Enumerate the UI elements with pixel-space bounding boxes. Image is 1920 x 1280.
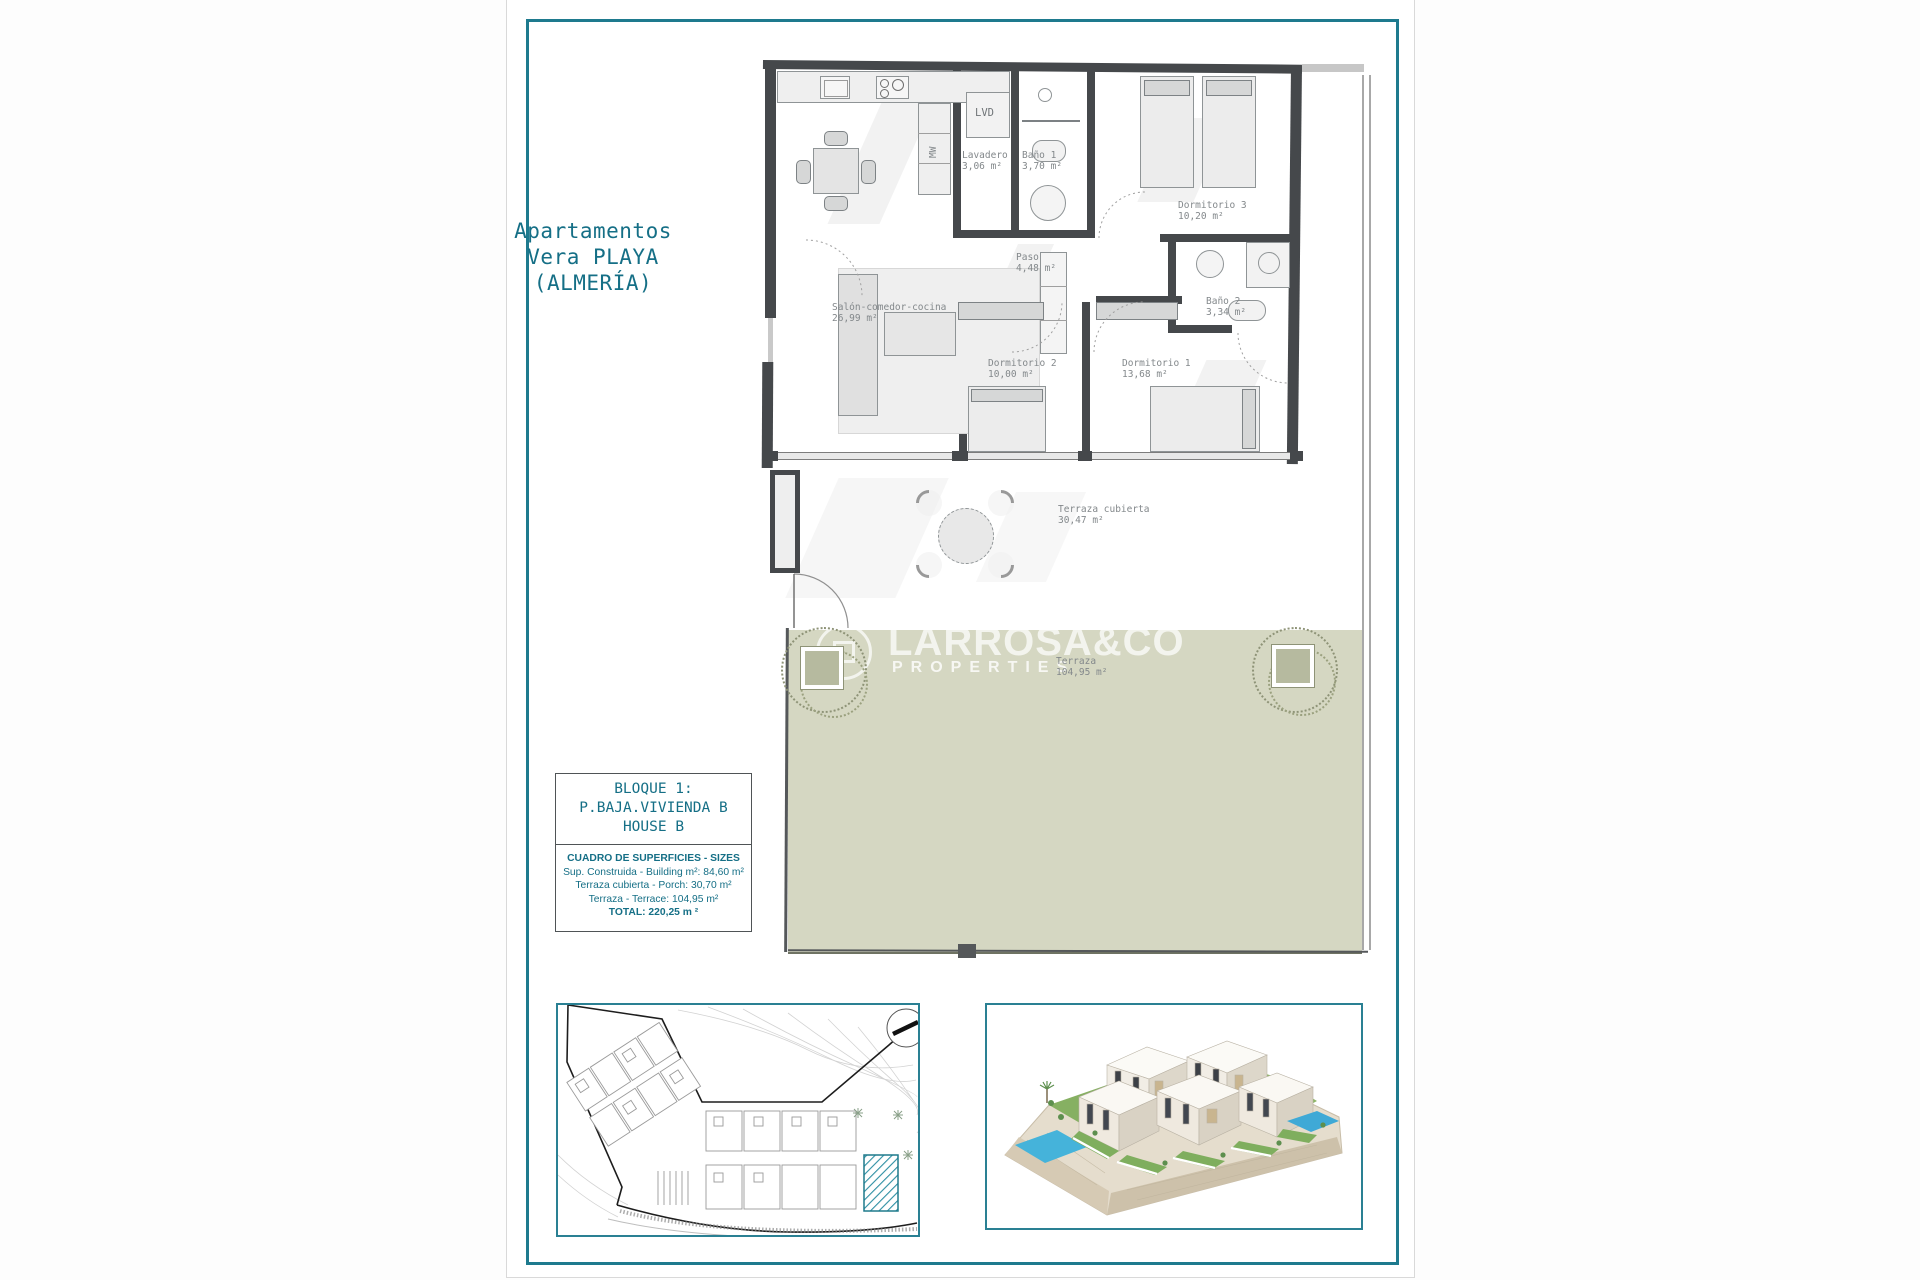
vivienda-line: P.BAJA.VIVIENDA B (556, 799, 751, 818)
window-left (768, 318, 773, 362)
laundry-closet-label: LVD (975, 108, 994, 119)
fence-line-inner (1369, 75, 1371, 950)
building-render (987, 1005, 1361, 1228)
dorm3-pillow-1 (1144, 80, 1190, 96)
sizes-total: TOTAL: 220,25 m ² (556, 906, 751, 920)
wall-lavadero-bano1 (1011, 66, 1019, 238)
terrace-chair (911, 547, 948, 584)
bath1-tap (1038, 88, 1052, 102)
tv-unit-shelf (1040, 320, 1067, 321)
garden-wall-post (958, 944, 976, 958)
watermark-tagline: PROPERTIES (892, 660, 1075, 676)
wall-left-upper (765, 62, 776, 318)
dorm3-pillow-2 (1206, 80, 1252, 96)
room-label-terraza-cubierta: Terraza cubierta30,47 m² (1058, 504, 1150, 526)
wall-bano2-top (1160, 234, 1291, 242)
pier-1 (762, 451, 778, 461)
dining-chair-n (824, 131, 848, 146)
wall-bano2-bottom (1168, 325, 1232, 333)
house-line: HOUSE B (556, 818, 751, 837)
dining-chair-s (824, 196, 848, 211)
microwave-label: MW (928, 147, 939, 158)
room-label-lavadero: Lavadero3,06 m² (962, 150, 1008, 172)
unit-info-title: BLOQUE 1: P.BAJA.VIVIENDA B HOUSE B (556, 774, 751, 845)
room-label-terraza: Terraza104,95 m² (1056, 656, 1107, 678)
site-plan-inset (556, 1003, 920, 1237)
bloque-line: BLOQUE 1: (556, 780, 751, 799)
watermark-brand: LARROSA&CO (888, 622, 1185, 662)
document-canvas: Apartamentos Vera PLAYA (ALMERÍA) LARROS… (0, 0, 1920, 1280)
fence-line-outer (1362, 75, 1364, 950)
wall-paso-top (953, 230, 1095, 238)
sizes-table: CUADRO DE SUPERFICIES - SIZES Sup. Const… (556, 845, 751, 920)
bath2-basin (1196, 250, 1224, 278)
porch-pillar (770, 470, 800, 573)
party-wall-stub (1302, 64, 1364, 72)
sizes-terrace: Terraza - Terrace: 104,95 m² (556, 893, 751, 907)
dorm1-wardrobe (1096, 302, 1178, 320)
planter-box-left (801, 647, 843, 689)
room-label-paso: Paso4,48 m² (1016, 252, 1056, 274)
wall-dorm2-dorm1 (1082, 302, 1090, 454)
salon-sofa (838, 274, 878, 416)
room-label-dorm3: Dormitorio 310,20 m² (1178, 200, 1247, 222)
room-label-bano1: Baño 13,70 m² (1022, 150, 1062, 172)
dorm2-wardrobe (958, 302, 1044, 320)
room-label-dorm2: Dormitorio 210,00 m² (988, 358, 1057, 380)
terrace-table (938, 508, 994, 564)
pier-4 (1290, 451, 1303, 461)
room-label-dorm1: Dormitorio 113,68 m² (1122, 358, 1191, 380)
sizes-header: CUADRO DE SUPERFICIES - SIZES (556, 852, 751, 866)
bath1-screen (1022, 120, 1080, 122)
window-band-bottom (762, 452, 1302, 460)
bath1-basin (1030, 185, 1066, 221)
highlighted-unit (864, 1155, 898, 1211)
tv-unit-shelf (1040, 286, 1067, 287)
hob-burner (880, 89, 889, 98)
dorm2-pillow (971, 389, 1043, 402)
room-label-salon: Salón-comedor-cocina26,99 m² (832, 302, 946, 324)
hob-burner (880, 79, 889, 88)
kitchen-sink-basin (824, 80, 848, 97)
hob-burner (892, 79, 904, 91)
unit-info-box: BLOQUE 1: P.BAJA.VIVIENDA B HOUSE B CUAD… (555, 773, 752, 932)
dining-chair-e (861, 160, 876, 184)
bath2-drain (1258, 252, 1280, 274)
dining-table (813, 148, 859, 194)
planter-box-right (1272, 645, 1314, 687)
dorm1-pillow (1242, 389, 1256, 449)
floor-plan: LARROSA&CO PROPERTIES (0, 0, 1920, 1280)
unit-shelf (918, 163, 951, 164)
sizes-built: Sup. Construida - Building m²: 84,60 m² (556, 866, 751, 880)
render-inset (985, 1003, 1363, 1230)
sizes-porch: Terraza cubierta - Porch: 30,70 m² (556, 879, 751, 893)
site-plan-drawing (558, 1005, 918, 1235)
unit-shelf (918, 133, 951, 134)
wall-bano1-dorm3 (1087, 66, 1095, 238)
room-label-bano2: Baño 23,34 m² (1206, 296, 1246, 318)
dining-chair-w (796, 160, 811, 184)
